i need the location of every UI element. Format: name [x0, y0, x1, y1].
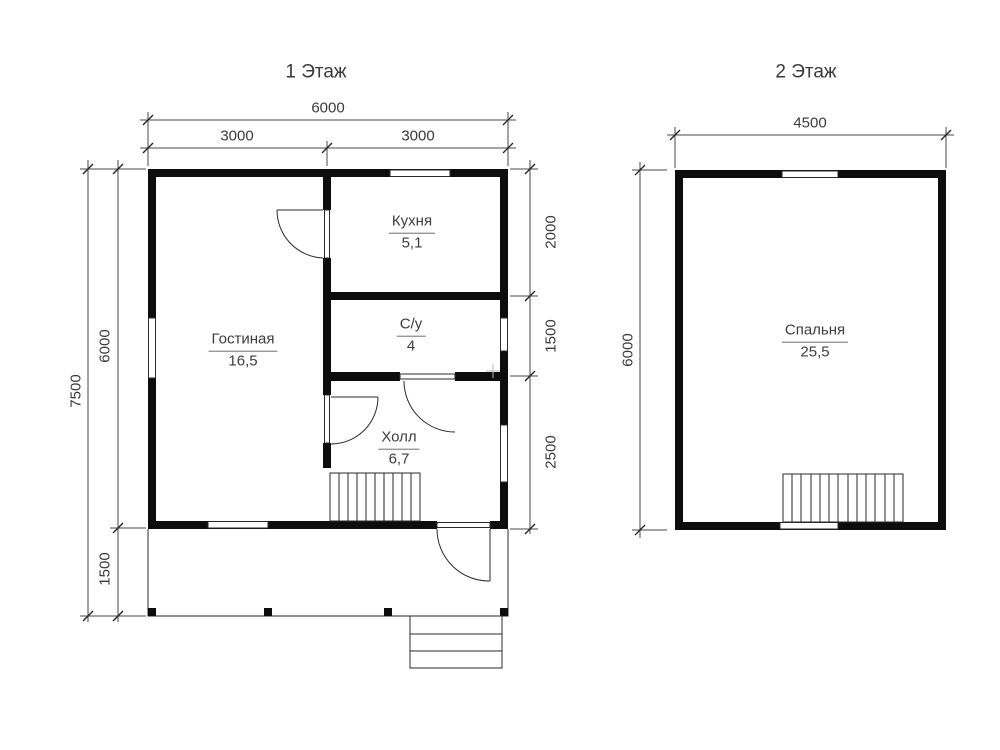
dim-floor1-top-right: 3000: [401, 129, 434, 144]
room-area: 6,7: [378, 450, 419, 469]
window-kitchen: [390, 170, 450, 177]
room-label-kitchen: Кухня 5,1: [389, 214, 435, 253]
room-label-wc: С/у 4: [397, 317, 426, 356]
dim-floor1-side-main: 6000: [98, 329, 113, 362]
dim-floor1-side-porch: 1500: [98, 552, 113, 585]
room-area: 16,5: [209, 352, 278, 371]
room-name: Спальня: [782, 323, 848, 343]
room-name: Холл: [378, 430, 419, 450]
window-wc: [501, 318, 508, 351]
floor1-title: 1 Этаж: [285, 63, 346, 82]
dim-floor1-side-total: 7500: [69, 374, 84, 407]
room-name: Кухня: [389, 214, 435, 234]
room-name: Гостиная: [209, 332, 278, 352]
floor2-stairs: [783, 474, 903, 522]
room-area: 5,1: [389, 234, 435, 253]
room-area: 25,5: [782, 343, 848, 362]
room-label-hall: Холл 6,7: [378, 430, 419, 469]
floor1-porch: [148, 529, 508, 616]
floor-plan-drawing: 1 Этаж 2 Этаж 6000 3000 3000 7500 6000 1…: [0, 0, 1000, 750]
door-arc-kitchen: [277, 210, 323, 258]
dim-floor2-top-total: 4500: [793, 116, 826, 131]
porch-posts: [148, 608, 508, 616]
dim-floor1-right-kitchen: 2000: [544, 215, 559, 248]
dim-floor2-side-total: 6000: [621, 333, 636, 366]
window-bedroom-bottom: [780, 523, 838, 530]
dim-floor1-right-hall: 2500: [544, 435, 559, 468]
door-arc-wc: [404, 381, 455, 432]
window-living-bottom: [208, 522, 268, 529]
window-bedroom-top: [782, 171, 838, 178]
door-arc-entrance: [437, 529, 490, 581]
dim-floor1-top-total: 6000: [311, 101, 344, 116]
room-label-bedroom: Спальня 25,5: [782, 323, 848, 362]
floor1-plan: [80, 112, 538, 668]
window-hall: [501, 425, 508, 482]
wall-top: [148, 169, 508, 177]
wall-kitchen-wc: [331, 292, 500, 300]
dim-floor1-top-left: 3000: [220, 129, 253, 144]
floor1-entry-steps: [410, 616, 502, 668]
floor2-title: 2 Этаж: [775, 63, 836, 82]
wall-left: [675, 170, 683, 530]
room-name: С/у: [397, 317, 426, 337]
window-living-left: [149, 318, 156, 378]
room-area: 4: [397, 337, 426, 356]
door-arc-hall: [331, 397, 378, 444]
floorplan-canvas: [0, 0, 1000, 750]
floor1-stairs: [330, 473, 420, 521]
room-label-living: Гостиная 16,5: [209, 332, 278, 371]
dim-floor1-right-wc: 1500: [544, 319, 559, 352]
wall-right: [938, 170, 946, 530]
